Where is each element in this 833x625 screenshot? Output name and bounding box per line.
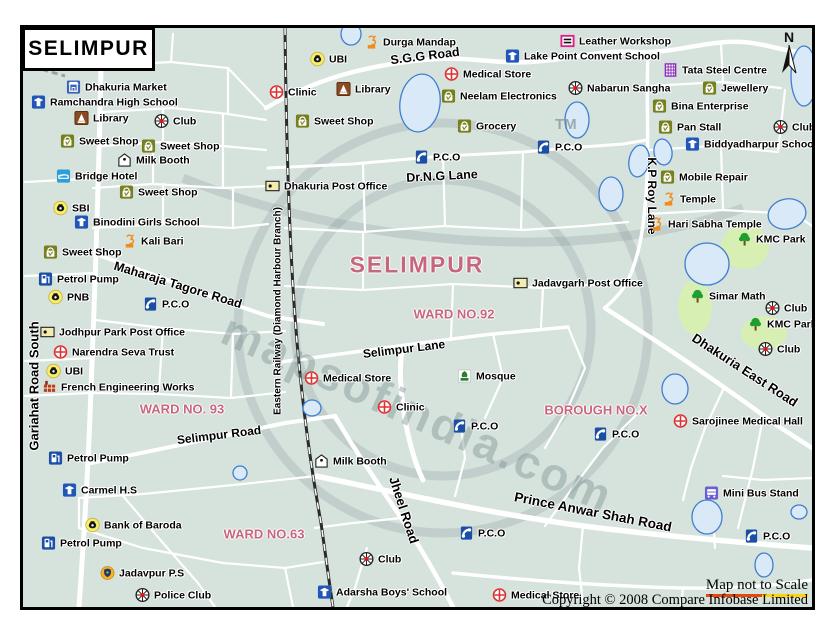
- poi-label: Mobile Repair: [679, 171, 748, 183]
- poi-label: P.C.O: [555, 141, 582, 153]
- temple-icon: [661, 192, 676, 207]
- map-title: SELIMPUR: [28, 37, 149, 61]
- poi-label: Jadavgarh Post Office: [532, 277, 643, 289]
- watermark-tm: TM: [555, 116, 577, 133]
- poi-label: Club: [784, 302, 807, 314]
- club-icon: [765, 301, 780, 316]
- poi-sweet-shop: Sweet Shop: [295, 114, 374, 129]
- poi-label: Lake Point Convent School: [524, 50, 660, 62]
- poi-sweet-shop: Sweet Shop: [119, 185, 198, 200]
- poi-narendra-seva-trust: Narendra Seva Trust: [53, 345, 174, 360]
- shop-icon: [43, 245, 58, 260]
- medical-icon: [673, 414, 688, 429]
- bank-icon: [310, 52, 325, 67]
- shop-icon: [457, 119, 472, 134]
- poi-label: Binodini Girls School: [93, 216, 200, 228]
- poi-mini-bus-stand: Mini Bus Stand: [704, 486, 799, 501]
- poi-label: P.C.O: [471, 420, 498, 432]
- pco-icon: [744, 529, 759, 544]
- temple-icon: [122, 234, 137, 249]
- poi-police-club: Police Club: [135, 588, 211, 603]
- poi-label: Bina Enterprise: [671, 100, 749, 112]
- poi-p-c-o: P.C.O: [536, 140, 582, 155]
- poi-sarojinee-medical-hall: Sarojinee Medical Hall: [673, 414, 803, 429]
- poi-label: P.C.O: [612, 428, 639, 440]
- poi-label: Club: [777, 343, 800, 355]
- poi-p-c-o: P.C.O: [744, 529, 790, 544]
- medical-icon: [377, 400, 392, 415]
- petrol-icon: [48, 451, 63, 466]
- poi-clinic: Clinic: [269, 85, 317, 100]
- poi-tata-steel-centre: Tata Steel Centre: [663, 63, 767, 78]
- poi-p-c-o: P.C.O: [414, 150, 460, 165]
- poi-label: Biddyadharpur School: [704, 138, 815, 150]
- poi-label: Jewellery: [721, 82, 768, 94]
- poi-mobile-repair: Mobile Repair: [660, 170, 748, 185]
- poi-label: Sarojinee Medical Hall: [692, 415, 803, 427]
- poi-sweet-shop: Sweet Shop: [43, 245, 122, 260]
- poi-club: Club: [154, 114, 196, 129]
- poi-label: Carmel H.S: [81, 484, 137, 496]
- shop-icon: [652, 99, 667, 114]
- shop-icon: [295, 114, 310, 129]
- map-canvas: mapsofindia.com TM SELIMPURWARD NO.92WAR…: [20, 25, 815, 610]
- poi-label: Library: [355, 83, 391, 95]
- poi-ubi: UBI: [310, 52, 347, 67]
- poi-clinic: Clinic: [377, 400, 425, 415]
- poi-dhakuria-post-office: Dhakuria Post Office: [265, 179, 387, 194]
- poi-pnb: PNB: [48, 290, 89, 305]
- poi-bank-of-baroda: Bank of Baroda: [85, 518, 182, 533]
- bank-icon: [46, 364, 61, 379]
- copyright-text: Copyright © 2008 Compare Infobase Limite…: [542, 592, 808, 609]
- poi-label: Petrol Pump: [60, 537, 122, 549]
- club-icon: [568, 81, 583, 96]
- poi-durga-mandap: Durga Mandap: [364, 35, 456, 50]
- poi-label: Petrol Pump: [67, 452, 129, 464]
- poi-label: Ramchandra High School: [50, 96, 178, 108]
- poi-label: Club: [378, 553, 401, 565]
- poi-p-c-o: P.C.O: [452, 419, 498, 434]
- poi-label: Sweet Shop: [79, 135, 139, 147]
- poi-binodini-girls-school: Binodini Girls School: [74, 215, 200, 230]
- poi-label: Police Club: [154, 589, 211, 601]
- poi-jewellery: Jewellery: [702, 81, 768, 96]
- poi-temple: Temple: [661, 192, 716, 207]
- temple-icon: [364, 35, 379, 50]
- poi-kmc-park: KMC Park: [737, 232, 806, 247]
- poi-medical-store: Medical Store: [444, 67, 531, 82]
- poi-club: Club: [765, 301, 807, 316]
- poi-label: Nabarun Sangha: [587, 82, 670, 94]
- poi-label: Durga Mandap: [383, 36, 456, 48]
- poi-p-c-o: P.C.O: [593, 427, 639, 442]
- poi-sweet-shop: Sweet Shop: [141, 139, 220, 154]
- poi-bina-enterprise: Bina Enterprise: [652, 99, 749, 114]
- school-icon: [505, 49, 520, 64]
- club-icon: [135, 588, 150, 603]
- area-label-ward-no-93: WARD NO. 93: [140, 402, 225, 417]
- poi-nabarun-sangha: Nabarun Sangha: [568, 81, 670, 96]
- poi-label: Adarsha Boys' School: [336, 586, 447, 598]
- map-title-box: SELIMPUR: [22, 27, 155, 71]
- market-icon: [66, 80, 81, 95]
- poi-label: Mosque: [476, 370, 516, 382]
- club-icon: [154, 114, 169, 129]
- steel-icon: [663, 63, 678, 78]
- poi-bridge-hotel: Bridge Hotel: [56, 169, 137, 184]
- poi-label: Petrol Pump: [57, 273, 119, 285]
- bank-icon: [48, 290, 63, 305]
- poi-neelam-electronics: Neelam Electronics: [441, 89, 557, 104]
- pco-icon: [452, 419, 467, 434]
- poi-label: Club: [792, 121, 815, 133]
- poi-label: Sweet Shop: [160, 140, 220, 152]
- school-icon: [31, 95, 46, 110]
- leather-icon: [560, 34, 575, 49]
- poi-label: P.C.O: [478, 527, 505, 539]
- pco-icon: [459, 526, 474, 541]
- poi-label: Sweet Shop: [314, 115, 374, 127]
- poi-jadavgarh-post-office: Jadavgarh Post Office: [513, 276, 643, 291]
- post-icon: [265, 179, 280, 194]
- pco-icon: [536, 140, 551, 155]
- poi-sbi: SBI: [53, 201, 90, 216]
- poi-label: Milk Booth: [136, 154, 190, 166]
- poi-label: Hari Sabha Temple: [668, 218, 762, 230]
- medical-icon: [304, 371, 319, 386]
- shop-icon: [658, 120, 673, 135]
- library-icon: [74, 111, 89, 126]
- shop-icon: [119, 185, 134, 200]
- medical-icon: [269, 85, 284, 100]
- poi-lake-point-convent-school: Lake Point Convent School: [505, 49, 660, 64]
- poi-label: PNB: [67, 291, 89, 303]
- poi-label: Jodhpur Park Post Office: [59, 326, 185, 338]
- poi-label: Dhakuria Market: [85, 81, 167, 93]
- poi-club: Club: [359, 552, 401, 567]
- school-icon: [685, 137, 700, 152]
- north-label: N: [784, 29, 794, 45]
- club-icon: [773, 120, 788, 135]
- poi-kmc-park: KMC Park: [748, 317, 815, 332]
- temple-icon: [649, 217, 664, 232]
- library-icon: [336, 82, 351, 97]
- school-icon: [62, 483, 77, 498]
- poi-pan-stall: Pan Stall: [658, 120, 721, 135]
- mosque-icon: [457, 369, 472, 384]
- poi-library: Library: [336, 82, 391, 97]
- poi-mosque: Mosque: [457, 369, 516, 384]
- north-indicator: N: [775, 28, 805, 83]
- poi-label: Narendra Seva Trust: [72, 346, 174, 358]
- poi-label: Temple: [680, 193, 716, 205]
- bus-icon: [704, 486, 719, 501]
- poi-label: UBI: [65, 365, 83, 377]
- petrol-icon: [38, 272, 53, 287]
- club-icon: [758, 342, 773, 357]
- poi-medical-store: Medical Store: [304, 371, 391, 386]
- bank-icon: [53, 201, 68, 216]
- post-icon: [40, 325, 55, 340]
- poi-label: Grocery: [476, 120, 516, 132]
- poi-biddyadharpur-school: Biddyadharpur School: [685, 137, 815, 152]
- poi-milk-booth: Milk Booth: [117, 153, 190, 168]
- pco-icon: [143, 297, 158, 312]
- road-label-eastern-railway-diamond-harbour-branch: Eastern Railway (Diamond Harbour Branch): [273, 207, 284, 415]
- poi-simar-math: Simar Math: [690, 289, 766, 304]
- poi-petrol-pump: Petrol Pump: [48, 451, 129, 466]
- poi-label: P.C.O: [162, 298, 189, 310]
- poi-label: SBI: [72, 202, 90, 214]
- area-label-selimpur: SELIMPUR: [350, 252, 485, 279]
- area-label-ward-no-63: WARD NO.63: [224, 527, 305, 542]
- poi-petrol-pump: Petrol Pump: [41, 536, 122, 551]
- poi-label: Bank of Baroda: [104, 519, 182, 531]
- poi-petrol-pump: Petrol Pump: [38, 272, 119, 287]
- shop-icon: [660, 170, 675, 185]
- poi-label: Milk Booth: [333, 455, 387, 467]
- poi-label: KMC Park: [767, 318, 815, 330]
- poi-grocery: Grocery: [457, 119, 516, 134]
- poi-label: P.C.O: [433, 151, 460, 163]
- poi-hari-sabha-temple: Hari Sabha Temple: [649, 217, 762, 232]
- poi-club: Club: [758, 342, 800, 357]
- poi-jadavpur-p-s: Jadavpur P.S: [100, 566, 184, 581]
- poi-label: Clinic: [288, 86, 317, 98]
- poi-ramchandra-high-school: Ramchandra High School: [31, 95, 178, 110]
- shop-icon: [441, 89, 456, 104]
- shop-icon: [141, 139, 156, 154]
- poi-label: Jadavpur P.S: [119, 567, 184, 579]
- tree-icon: [737, 232, 752, 247]
- pco-icon: [414, 150, 429, 165]
- post-icon: [513, 276, 528, 291]
- poi-leather-workshop: Leather Workshop: [560, 34, 671, 49]
- poi-label: UBI: [329, 53, 347, 65]
- poi-label: Bridge Hotel: [75, 170, 137, 182]
- poi-label: Club: [173, 115, 196, 127]
- north-arrow-icon: [782, 45, 796, 73]
- poi-label: Kali Bari: [141, 235, 184, 247]
- police-icon: [100, 566, 115, 581]
- page: { "title": "SELIMPUR", "north_label": "N…: [0, 0, 833, 625]
- poi-label: Clinic: [396, 401, 425, 413]
- poi-adarsha-boys-school: Adarsha Boys' School: [317, 585, 447, 600]
- medical-icon: [53, 345, 68, 360]
- poi-label: Tata Steel Centre: [682, 64, 767, 76]
- scale-note-text: Map not to Scale: [706, 577, 808, 593]
- poi-dhakuria-market: Dhakuria Market: [66, 80, 167, 95]
- petrol-icon: [41, 536, 56, 551]
- poi-label: Leather Workshop: [579, 35, 671, 47]
- poi-club: Club: [773, 120, 815, 135]
- milk-icon: [314, 454, 329, 469]
- poi-carmel-h-s: Carmel H.S: [62, 483, 137, 498]
- poi-sweet-shop: Sweet Shop: [60, 134, 139, 149]
- poi-french-engineering-works: French Engineering Works: [42, 380, 194, 395]
- poi-ubi: UBI: [46, 364, 83, 379]
- poi-label: Medical Store: [463, 68, 531, 80]
- poi-milk-booth: Milk Booth: [314, 454, 387, 469]
- road-label-gariahat-road-south: Gariahat Road South: [27, 321, 42, 450]
- club-icon: [359, 552, 374, 567]
- poi-p-c-o: P.C.O: [459, 526, 505, 541]
- poi-label: Medical Store: [323, 372, 391, 384]
- hotel-icon: [56, 169, 71, 184]
- milk-icon: [117, 153, 132, 168]
- poi-jodhpur-park-post-office: Jodhpur Park Post Office: [40, 325, 185, 340]
- medical-icon: [444, 67, 459, 82]
- poi-label: Neelam Electronics: [460, 90, 557, 102]
- poi-label: Mini Bus Stand: [723, 487, 799, 499]
- poi-label: French Engineering Works: [61, 381, 194, 393]
- poi-label: Simar Math: [709, 290, 766, 302]
- pco-icon: [593, 427, 608, 442]
- tree-icon: [748, 317, 763, 332]
- poi-label: P.C.O: [763, 530, 790, 542]
- poi-p-c-o: P.C.O: [143, 297, 189, 312]
- bank-icon: [85, 518, 100, 533]
- poi-label: KMC Park: [756, 233, 806, 245]
- poi-label: Dhakuria Post Office: [284, 180, 387, 192]
- factory-icon: [42, 380, 57, 395]
- poi-label: Sweet Shop: [138, 186, 198, 198]
- area-label-borough-no-x: BOROUGH NO.X: [544, 403, 647, 418]
- poi-label: Sweet Shop: [62, 246, 122, 258]
- shop-icon: [60, 134, 75, 149]
- tree-icon: [690, 289, 705, 304]
- poi-label: Pan Stall: [677, 121, 721, 133]
- medical-icon: [492, 588, 507, 603]
- school-icon: [317, 585, 332, 600]
- area-label-ward-no-92: WARD NO.92: [414, 307, 495, 322]
- poi-kali-bari: Kali Bari: [122, 234, 184, 249]
- poi-label: Library: [93, 112, 129, 124]
- school-icon: [74, 215, 89, 230]
- shop-icon: [702, 81, 717, 96]
- poi-library: Library: [74, 111, 129, 126]
